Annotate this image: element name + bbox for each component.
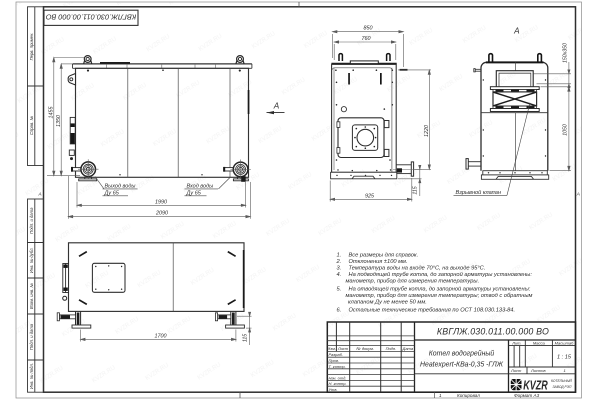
svg-text:Подп. и дата: Подп. и дата [29, 207, 34, 234]
svg-text:4.: 4. [337, 272, 342, 278]
svg-text:Дата: Дата [402, 346, 414, 351]
svg-text:Утв.: Утв. [329, 387, 338, 392]
svg-text:Справ. №: Справ. № [29, 116, 34, 135]
svg-text:Инв. № дубл.: Инв. № дубл. [29, 247, 34, 273]
svg-text:2090: 2090 [155, 211, 168, 217]
svg-text:манометр, прибор для измерения: манометр, прибор для измерения температу… [346, 293, 533, 299]
svg-text:760: 760 [362, 36, 371, 42]
svg-text:1: 1 [439, 393, 442, 398]
svg-text:На отводящей трубе котла, до з: На отводящей трубе котла, до запорной ар… [349, 286, 531, 293]
svg-text:115: 115 [243, 334, 249, 342]
svg-text:КВГЛЖ.030.011.00.000 ВО: КВГЛЖ.030.011.00.000 ВО [437, 326, 549, 336]
svg-text:Копировал: Копировал [457, 393, 480, 398]
svg-text:Лит.: Лит. [511, 340, 521, 345]
svg-text:Инв. № подл.: Инв. № подл. [29, 363, 34, 389]
svg-text:А: А [38, 192, 42, 197]
svg-text:Взам. инв. №: Взам. инв. № [29, 283, 34, 309]
svg-text:1: 1 [564, 368, 566, 373]
svg-text:1 : 15: 1 : 15 [557, 355, 572, 361]
svg-text:5.: 5. [337, 287, 342, 293]
svg-text:850: 850 [364, 26, 373, 32]
svg-text:На подводящей трубе котла, до: На подводящей трубе котла, до запорной а… [349, 271, 533, 278]
svg-text:Отклонения ±100 мм.: Отклонения ±100 мм. [349, 259, 408, 265]
svg-text:Подп.: Подп. [386, 346, 397, 351]
svg-text:115: 115 [413, 186, 419, 194]
svg-text:Подп. и дата: Подп. и дата [29, 323, 34, 350]
svg-text:925: 925 [365, 193, 375, 199]
svg-text:Формат А3: Формат А3 [514, 393, 540, 398]
svg-text:манометр, прибор для измерения: манометр, прибор для измерения температу… [346, 278, 480, 284]
svg-text:КОТЕЛЬНЫЙ: КОТЕЛЬНЫЙ [551, 379, 572, 383]
svg-text:Перв. примен.: Перв. примен. [29, 33, 34, 61]
svg-text:1220: 1220 [424, 125, 430, 137]
svg-text:Выход воды: Выход воды [105, 183, 136, 189]
svg-text:Масса: Масса [533, 340, 546, 345]
svg-text:Изм.: Изм. [327, 346, 336, 351]
svg-text:Пров.: Пров. [329, 358, 340, 363]
svg-text:Взрывной клапан: Взрывной клапан [456, 189, 501, 196]
svg-text:№ докум.: № докум. [356, 346, 374, 351]
svg-text:Лист: Лист [337, 346, 349, 351]
svg-text:Вход воды: Вход воды [187, 183, 214, 189]
svg-text:Разраб.: Разраб. [329, 352, 343, 357]
svg-text:клапаном Ду не менее 50 мм.: клапаном Ду не менее 50 мм. [348, 300, 427, 306]
svg-text:1.: 1. [337, 252, 342, 258]
svg-text:1455: 1455 [49, 106, 55, 119]
svg-text:1350: 1350 [56, 115, 62, 127]
svg-text:Листов: Листов [530, 368, 546, 373]
svg-text:А: А [576, 192, 580, 197]
svg-text:2.: 2. [336, 259, 342, 265]
svg-text:Heatexpert-КВа-0,35 -ГЛЖ: Heatexpert-КВа-0,35 -ГЛЖ [420, 361, 504, 368]
svg-text:Котел водогрейный: Котел водогрейный [429, 350, 495, 358]
svg-text:Все размеры для справок.: Все размеры для справок. [349, 252, 419, 258]
svg-text:Масштаб: Масштаб [555, 340, 574, 345]
svg-text:Н. контр.: Н. контр. [329, 381, 347, 386]
svg-text:А: А [273, 102, 280, 111]
svg-text:1990: 1990 [155, 199, 167, 205]
svg-text:3.: 3. [337, 265, 342, 271]
svg-text:Нач. отд.: Нач. отд. [329, 375, 347, 380]
svg-text:1700: 1700 [155, 333, 167, 339]
svg-text:КВГЛЖ.030.011.00.000 ВО: КВГЛЖ.030.011.00.000 ВО [46, 13, 137, 22]
svg-text:KVZR: KVZR [523, 378, 548, 392]
svg-text:Остальные технические требован: Остальные технические требования по ОСТ … [349, 308, 516, 314]
svg-text:Т. контр.: Т. контр. [329, 364, 346, 369]
svg-text:Лист: Лист [510, 368, 522, 373]
svg-text:Температура воды на входе 70°С: Температура воды на входе 70°С, на выход… [349, 265, 486, 271]
svg-text:А: А [513, 27, 520, 36]
svg-text:6.: 6. [337, 308, 342, 314]
svg-text:ЗАВОД РЭП: ЗАВОД РЭП [553, 385, 573, 389]
svg-text:1050: 1050 [563, 124, 569, 136]
svg-text:150х350: 150х350 [563, 43, 569, 63]
